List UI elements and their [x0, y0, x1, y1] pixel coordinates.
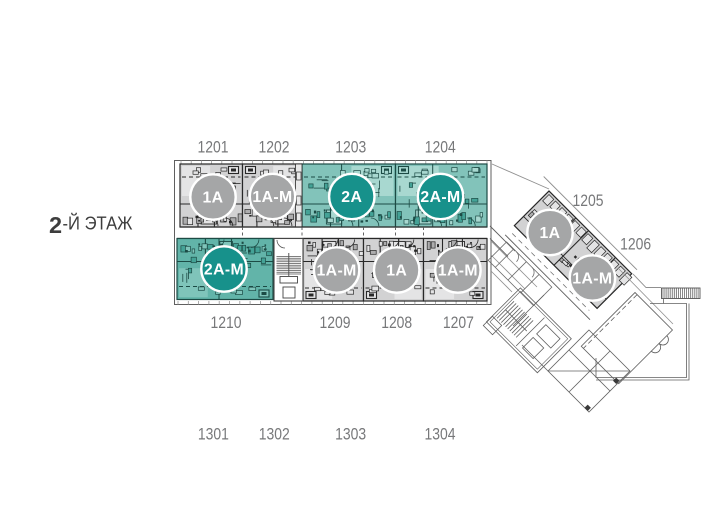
svg-text:1303: 1303: [335, 426, 366, 444]
svg-text:1301: 1301: [198, 426, 229, 444]
svg-text:1201: 1201: [198, 139, 229, 157]
svg-text:1204: 1204: [425, 139, 456, 157]
svg-text:1A-M: 1A-M: [252, 189, 292, 206]
svg-text:2A-M: 2A-M: [420, 189, 460, 206]
svg-text:1A: 1A: [203, 190, 224, 207]
svg-text:1302: 1302: [259, 426, 290, 444]
svg-text:1A-M: 1A-M: [572, 271, 612, 288]
svg-text:1A: 1A: [540, 225, 561, 242]
svg-text:1304: 1304: [425, 426, 456, 444]
svg-text:2A-M: 2A-M: [204, 262, 244, 279]
svg-text:1209: 1209: [320, 314, 351, 332]
svg-text:1205: 1205: [573, 192, 604, 210]
svg-text:1207: 1207: [443, 314, 474, 332]
svg-text:-Й ЭТАЖ: -Й ЭТАЖ: [63, 213, 133, 234]
svg-text:1210: 1210: [211, 314, 242, 332]
svg-text:1203: 1203: [335, 139, 366, 157]
svg-text:2A: 2A: [341, 189, 362, 206]
svg-text:1A: 1A: [386, 263, 407, 280]
svg-text:1A-M: 1A-M: [438, 263, 478, 280]
svg-text:1206: 1206: [620, 236, 651, 254]
svg-text:1208: 1208: [381, 314, 412, 332]
svg-text:1202: 1202: [259, 139, 290, 157]
svg-text:2: 2: [49, 212, 62, 238]
svg-text:1A-M: 1A-M: [316, 263, 356, 280]
